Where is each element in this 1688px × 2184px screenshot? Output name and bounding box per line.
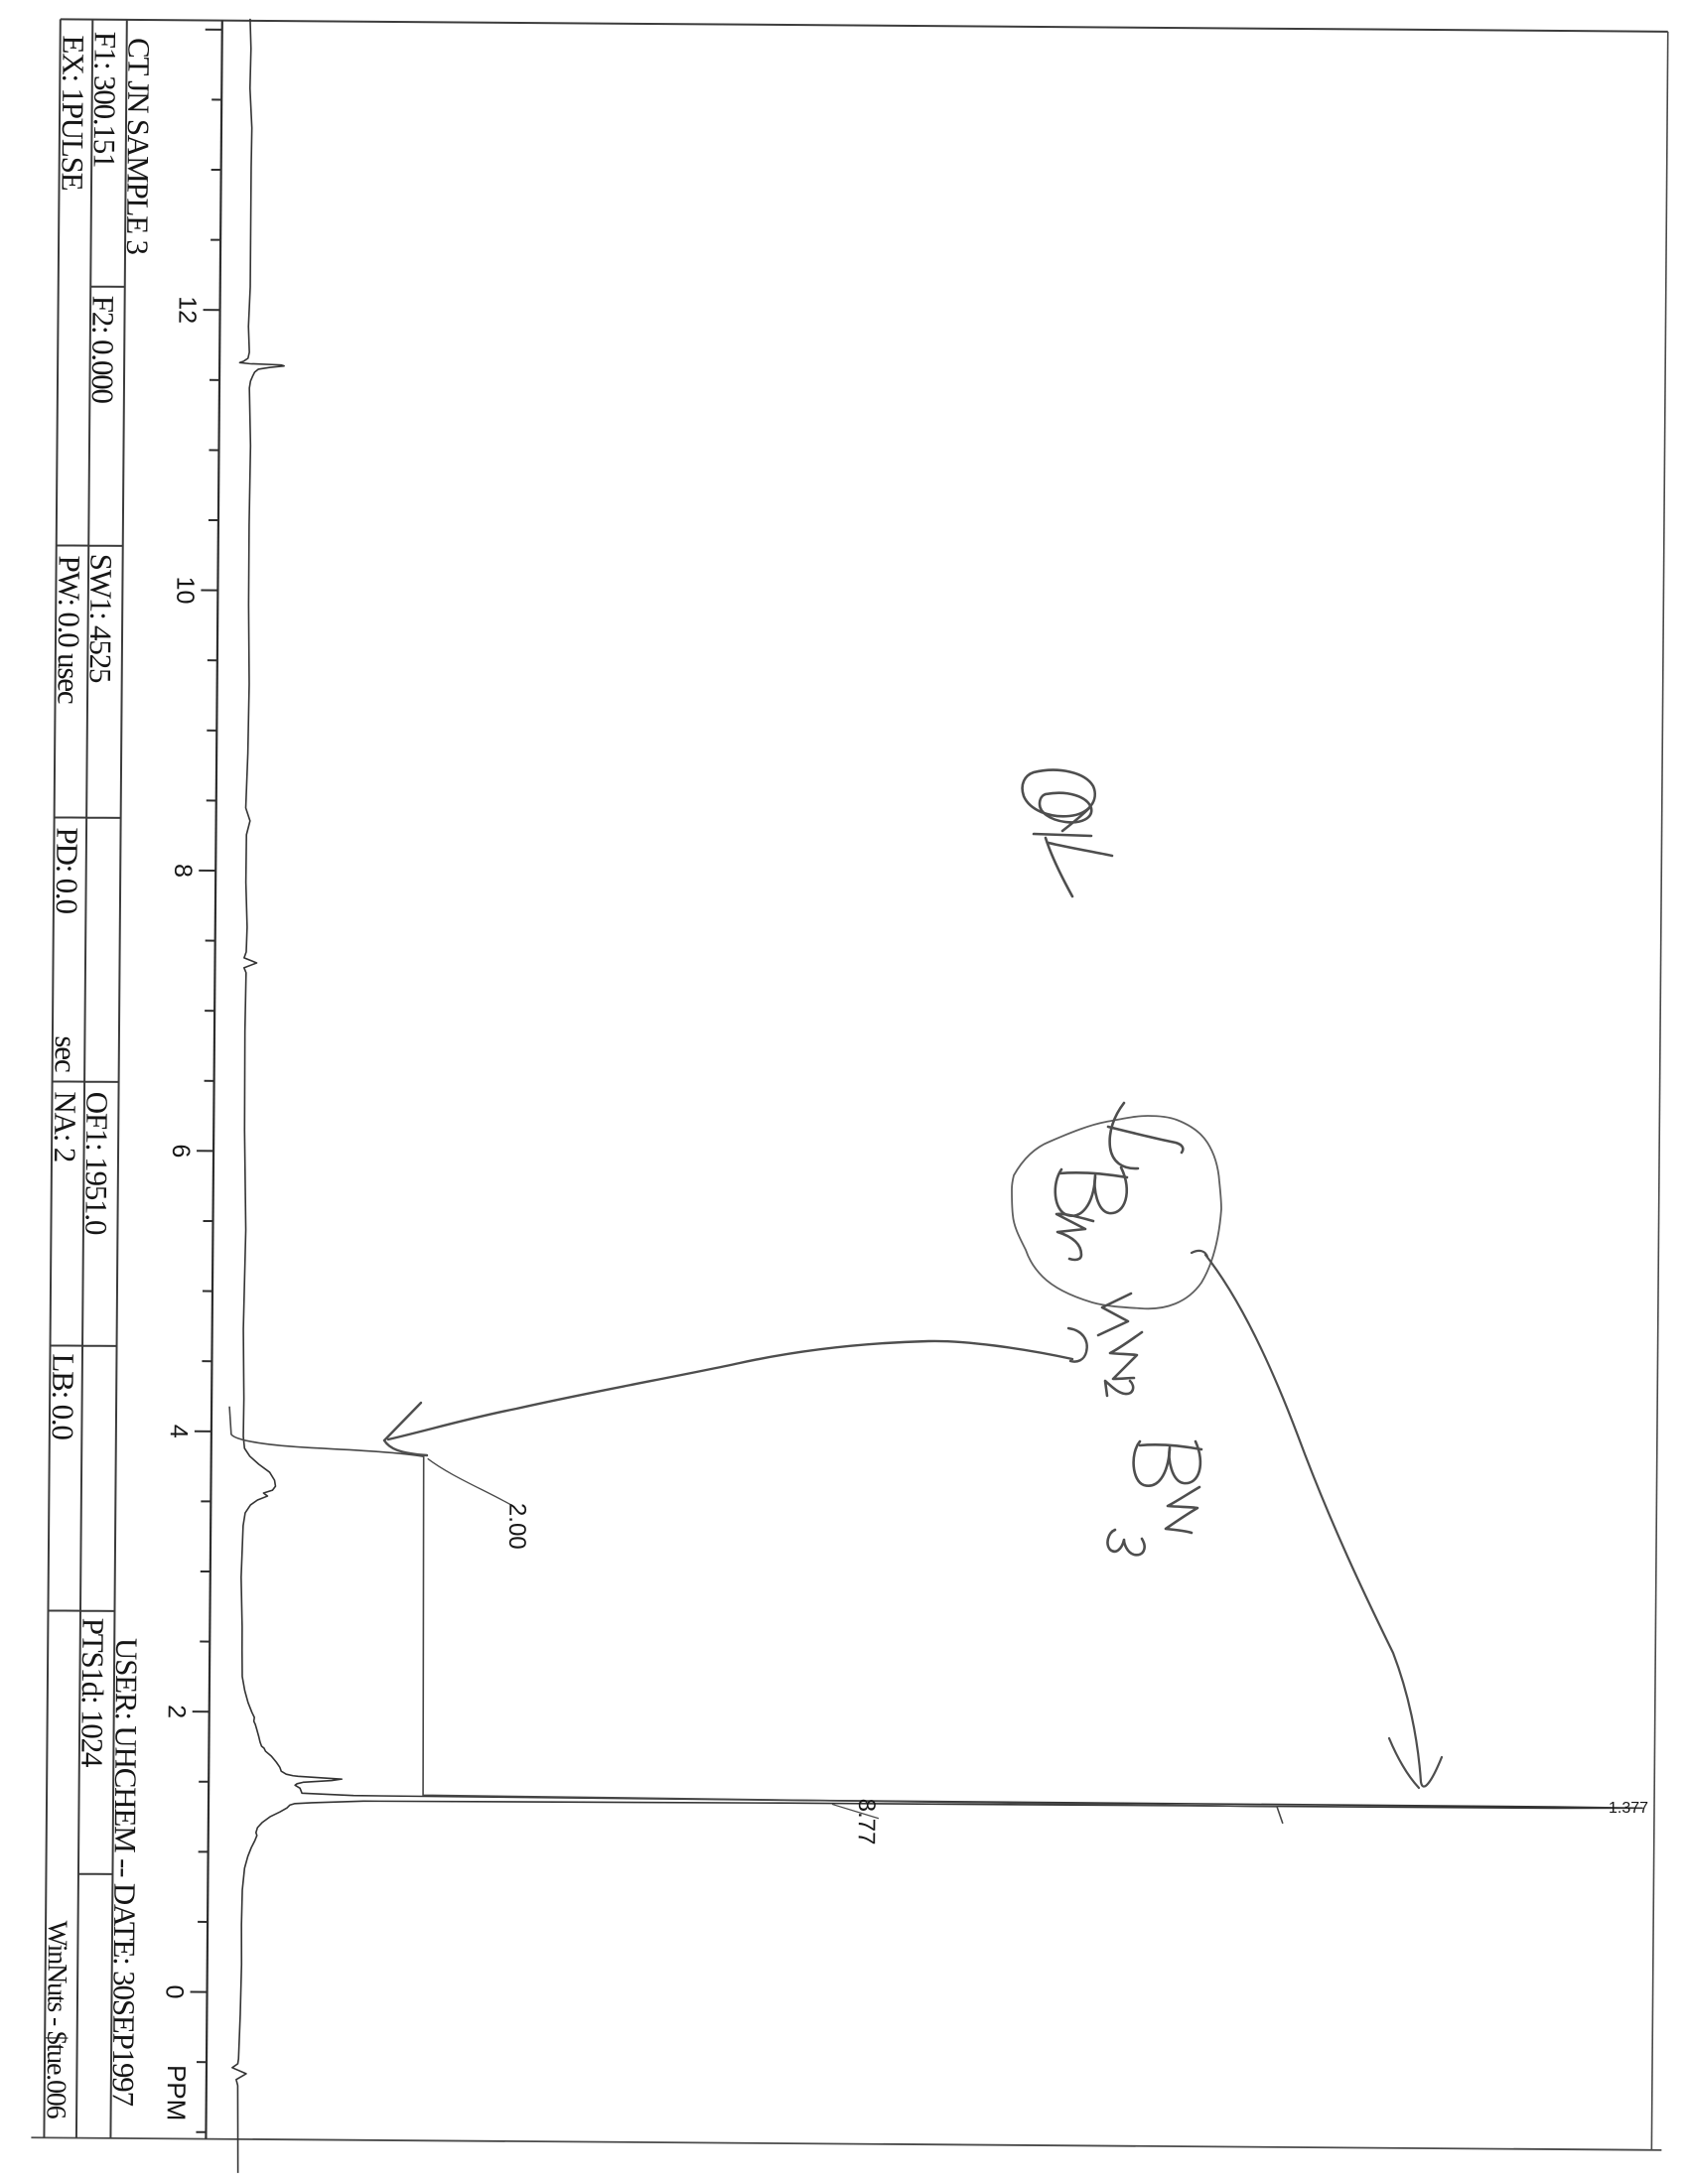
- svg-text:1.377: 1.377: [1609, 1800, 1648, 1817]
